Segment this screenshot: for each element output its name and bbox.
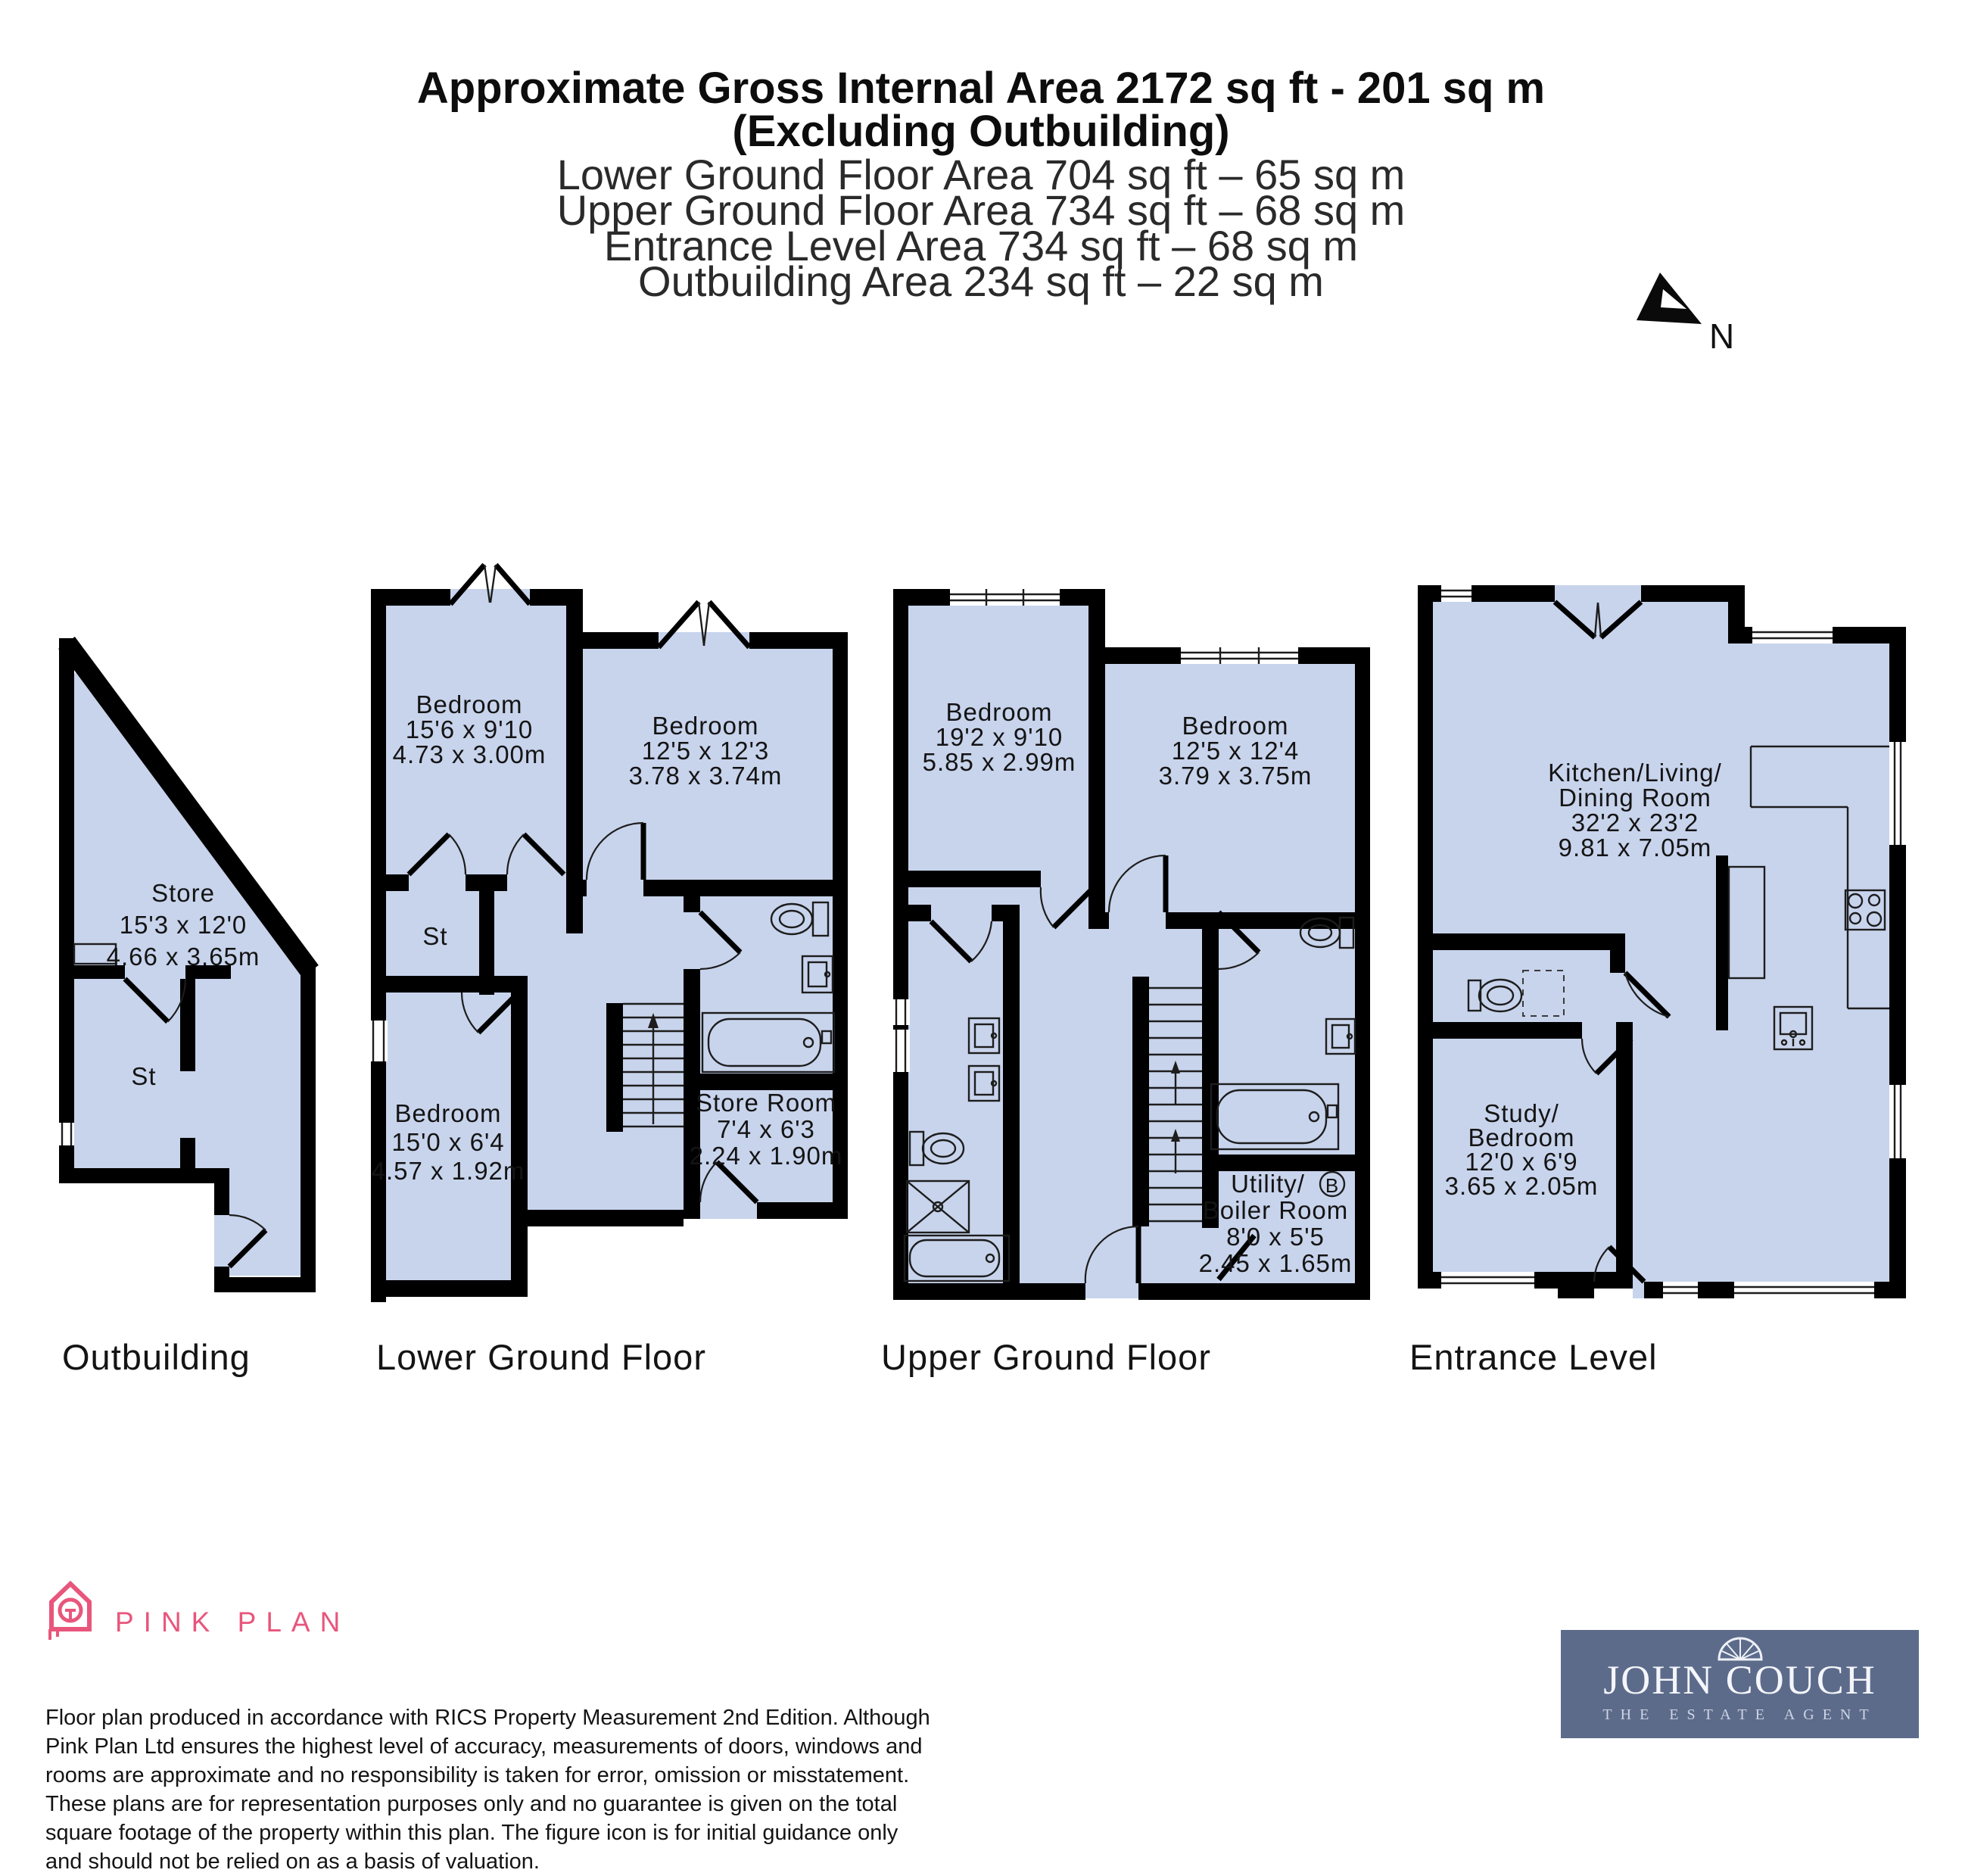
floor-plan-lower-ground: Bedroom 15'6 x 9'10 4.73 x 3.00m Bedroom… (363, 575, 878, 1317)
title-line-1: Approximate Gross Internal Area 2172 sq … (0, 67, 1962, 110)
room-imperial: 12'5 x 12'4 (1172, 737, 1300, 765)
title-line-2: (Excluding Outbuilding) (0, 110, 1962, 153)
north-label: N (1709, 316, 1734, 356)
room-name-2: Boiler Room (1203, 1196, 1349, 1224)
pink-plan-logo-text: PINK PLAN (115, 1606, 350, 1638)
room-imperial: 12'5 x 12'3 (642, 737, 770, 765)
room-metric: 9.81 x 7.05m (1559, 834, 1712, 862)
entrance-level-floor-name: Entrance Level (1409, 1336, 1658, 1378)
fanlight-icon (1716, 1634, 1764, 1660)
ent-kitchen-label: Kitchen/Living/ Dining Room 32'2 x 23'2 … (1548, 759, 1722, 862)
room-metric: 4.66 x 3.65m (107, 943, 260, 971)
disclaimer-text: Floor plan produced in accordance with R… (45, 1703, 935, 1876)
page-title: Approximate Gross Internal Area 2172 sq … (0, 67, 1962, 153)
room-metric: 3.65 x 2.05m (1445, 1172, 1599, 1200)
room-imperial: 15'3 x 12'0 (120, 911, 248, 939)
room-imperial: 15'0 x 6'4 (391, 1128, 504, 1156)
room-metric: 4.57 x 1.92m (372, 1157, 525, 1185)
room-name: Bedroom (652, 712, 759, 740)
room-name: Bedroom (946, 698, 1053, 726)
floor-plan-upper-ground: Bedroom 19'2 x 9'10 5.85 x 2.99m Bedroom… (886, 575, 1400, 1317)
pink-plan-house-icon (45, 1576, 95, 1644)
room-name-1: Utility/ (1231, 1170, 1305, 1198)
north-arrow-icon: N (1612, 257, 1839, 371)
room-metric: 3.78 x 3.74m (629, 762, 783, 790)
room-imperial: 8'0 x 5'5 (1226, 1223, 1325, 1251)
room-name: Bedroom (1182, 712, 1289, 740)
agent-tagline: THE ESTATE AGENT (1602, 1706, 1876, 1724)
lgf-left-window (369, 1021, 388, 1061)
room-imperial: 32'2 x 23'2 (1571, 809, 1699, 837)
room-name: Bedroom (395, 1099, 502, 1127)
agent-name: JOHN COUCH (1603, 1656, 1876, 1703)
room-imperial: 19'2 x 9'10 (936, 723, 1064, 751)
outbuilding-window (59, 1123, 74, 1145)
room-name: Store (151, 879, 215, 907)
outbuilding-floor-name: Outbuilding (62, 1336, 251, 1378)
room-name: Bedroom (416, 690, 523, 718)
room-metric: 2.24 x 1.90m (690, 1142, 843, 1170)
floor-plan-outbuilding: Store 15'3 x 12'0 4.66 x 3.65m St (53, 632, 333, 1317)
room-metric: 4.73 x 3.00m (393, 740, 547, 768)
room-name-2: Dining Room (1559, 784, 1711, 812)
room-name-1: Kitchen/Living/ (1548, 759, 1722, 787)
room-metric: 2.45 x 1.65m (1199, 1249, 1353, 1277)
boiler-badge: B (1325, 1174, 1339, 1197)
lower-ground-floor-name: Lower Ground Floor (376, 1336, 706, 1378)
floor-plan-entrance-level: Kitchen/Living/ Dining Room 32'2 x 23'2 … (1408, 575, 1923, 1317)
room-name: Store Room (696, 1089, 836, 1117)
st-label: St (131, 1062, 156, 1090)
upper-ground-floor-name: Upper Ground Floor (881, 1336, 1211, 1378)
room-metric: 5.85 x 2.99m (923, 748, 1076, 776)
room-metric: 3.79 x 3.75m (1159, 762, 1313, 790)
room-imperial: 15'6 x 9'10 (406, 715, 534, 743)
lgf-st-label: St (422, 922, 447, 950)
agent-logo: JOHN COUCH THE ESTATE AGENT (1561, 1630, 1919, 1738)
room-imperial: 7'4 x 6'3 (717, 1115, 815, 1143)
